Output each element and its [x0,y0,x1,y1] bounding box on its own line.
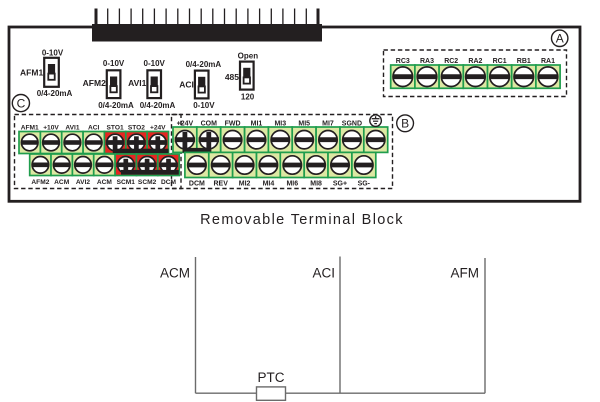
svg-text:C: C [17,97,26,111]
svg-text:RC1: RC1 [493,58,507,65]
svg-text:+24V: +24V [177,120,194,127]
svg-text:AFM1: AFM1 [21,124,39,131]
svg-text:STO1: STO1 [107,124,124,131]
svg-text:0/4-20mA: 0/4-20mA [98,101,134,110]
svg-text:0-10V: 0-10V [103,59,125,68]
svg-text:RA1: RA1 [541,58,555,65]
svg-text:AVI1: AVI1 [65,124,80,131]
svg-text:DCM: DCM [189,181,205,188]
svg-text:COM: COM [201,120,218,127]
svg-text:Removable Terminal Block: Removable Terminal Block [200,212,404,228]
svg-text:MI3: MI3 [274,120,286,127]
svg-text:RC3: RC3 [396,58,410,65]
svg-text:ACM: ACM [54,179,70,186]
svg-text:RB1: RB1 [517,58,531,65]
svg-text:A: A [556,32,564,46]
svg-text:ACI: ACI [312,266,335,281]
svg-text:AFM2: AFM2 [31,179,49,186]
svg-text:AVI2: AVI2 [76,179,91,186]
svg-text:0-10V: 0-10V [193,101,215,110]
svg-text:SGND: SGND [342,120,362,127]
svg-text:RA3: RA3 [420,58,434,65]
svg-text:DCM: DCM [161,179,177,186]
svg-text:MI1: MI1 [251,120,263,127]
svg-text:SCM1: SCM1 [117,179,136,186]
svg-text:MI5: MI5 [298,120,310,127]
svg-text:0-10V: 0-10V [42,48,64,57]
svg-text:ACI: ACI [88,124,100,131]
svg-text:FWD: FWD [225,120,241,127]
svg-text:0/4-20mA: 0/4-20mA [186,60,222,69]
svg-text:STO2: STO2 [128,124,145,131]
svg-text:AFM1: AFM1 [20,68,43,78]
svg-text:ACI: ACI [179,79,194,89]
svg-text:0/4-20mA: 0/4-20mA [140,101,176,110]
svg-text:AFM2: AFM2 [83,78,106,88]
svg-text:SG+: SG+ [333,181,347,188]
svg-text:485: 485 [225,72,239,82]
svg-text:120: 120 [241,93,255,102]
svg-text:+24V: +24V [150,124,166,131]
svg-text:ACM: ACM [97,179,113,186]
svg-text:SCM2: SCM2 [138,179,157,186]
svg-text:MI2: MI2 [239,181,251,188]
svg-text:MI7: MI7 [322,120,334,127]
svg-text:SG-: SG- [358,181,371,188]
svg-text:RA2: RA2 [468,58,482,65]
svg-text:Open: Open [238,52,259,61]
svg-text:0/4-20mA: 0/4-20mA [37,89,73,98]
svg-text:B: B [401,117,409,131]
svg-text:MI8: MI8 [310,181,322,188]
svg-text:REV: REV [213,181,228,188]
svg-text:PTC: PTC [258,370,285,385]
svg-text:ACM: ACM [160,266,190,281]
svg-text:MI6: MI6 [286,181,298,188]
svg-text:AVI1: AVI1 [128,78,147,88]
svg-text:MI4: MI4 [263,181,275,188]
svg-text:RC2: RC2 [444,58,458,65]
svg-text:AFM: AFM [451,266,480,281]
svg-text:0-10V: 0-10V [144,59,166,68]
svg-text:+10V: +10V [43,124,59,131]
